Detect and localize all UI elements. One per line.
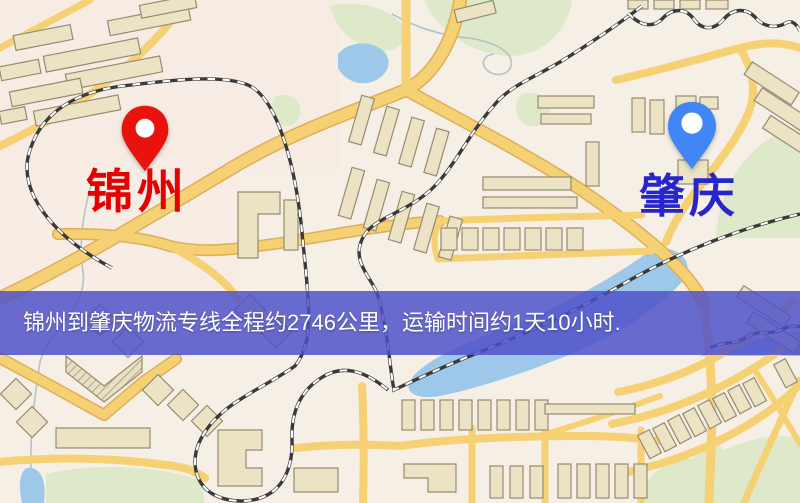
origin-pin[interactable]: [118, 104, 172, 174]
route-info-banner: 锦州到肇庆物流专线全程约2746公里，运输时间约1天10小时.: [0, 291, 800, 355]
destination-city-label: 肇庆: [614, 174, 764, 220]
route-info-text: 锦州到肇庆物流专线全程约2746公里，运输时间约1天10小时.: [23, 310, 621, 335]
park-top-left-blob: [330, 4, 405, 51]
pond-bottom-left: [20, 468, 45, 503]
map-pin-icon: [118, 104, 172, 174]
origin-city-label: 锦州: [62, 170, 212, 217]
map-canvas: 锦州 肇庆 锦州到肇庆物流专线全程约2746公里，运输时间约1天10小时.: [0, 0, 800, 503]
park-bottom-left: [46, 467, 204, 503]
destination-pin[interactable]: [664, 100, 720, 172]
map-background: [0, 0, 800, 503]
lake-top: [338, 43, 389, 83]
map-pin-icon: [664, 100, 720, 172]
